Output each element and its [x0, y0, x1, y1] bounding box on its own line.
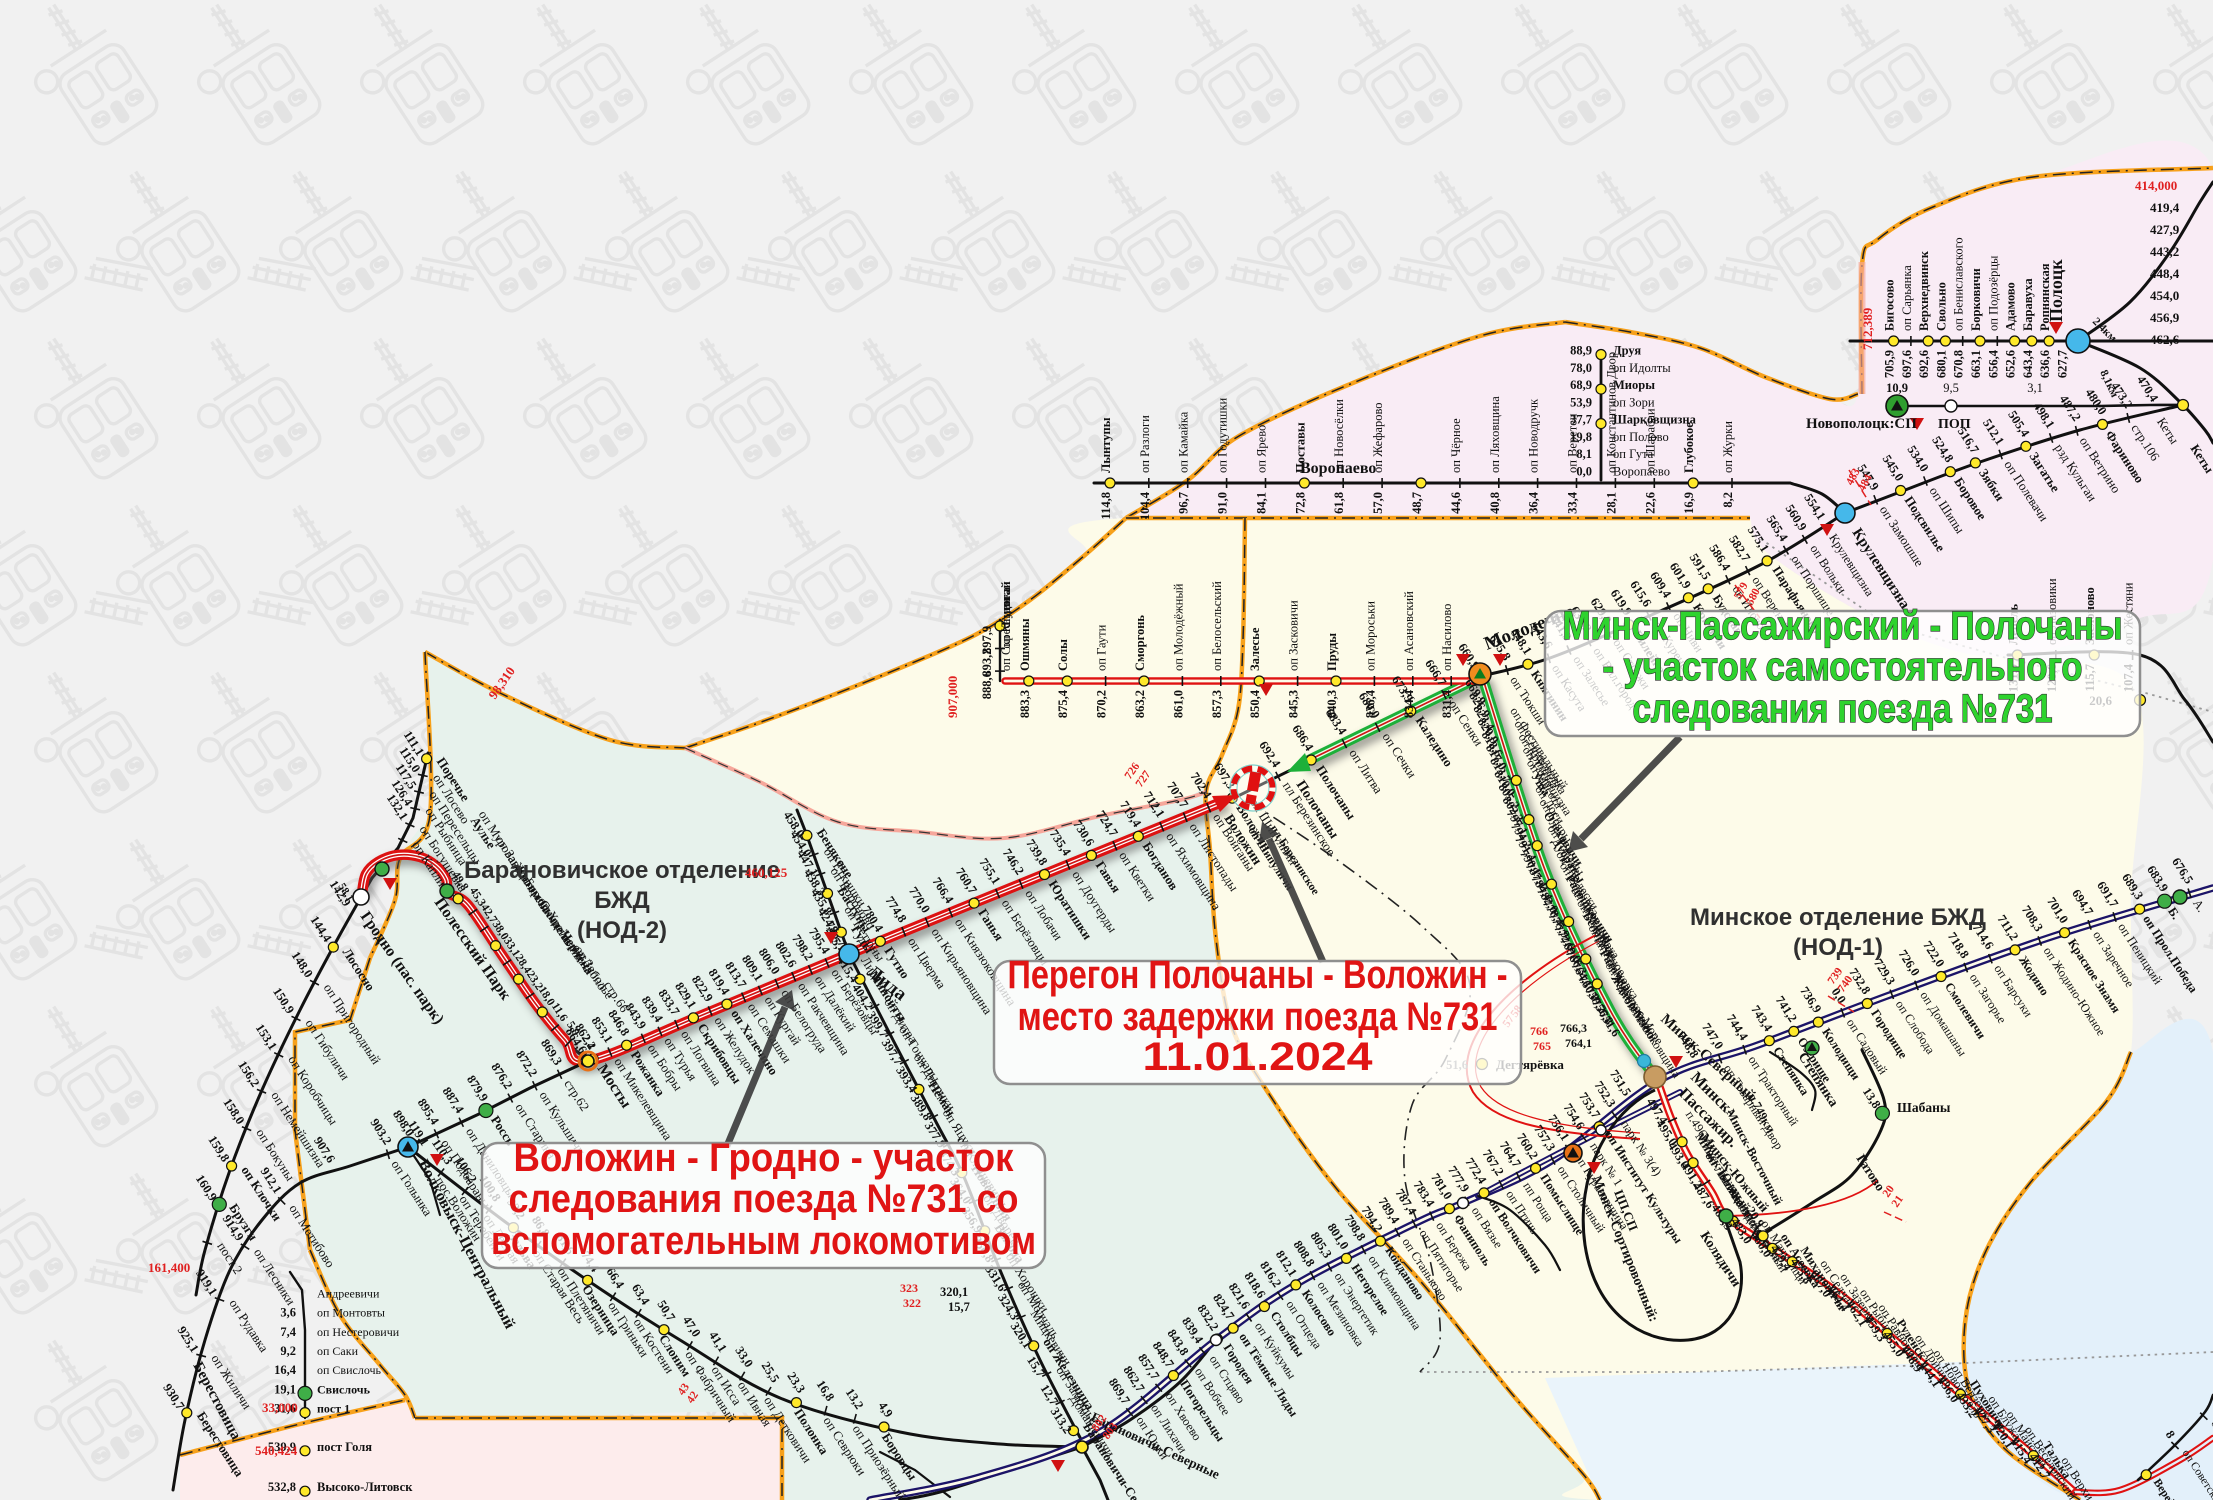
svg-text:670,8: 670,8 [1952, 350, 1966, 378]
svg-text:414,000: 414,000 [2135, 178, 2177, 193]
svg-text:831,4: 831,4 [1440, 689, 1454, 718]
svg-text:680,1: 680,1 [1934, 350, 1948, 378]
svg-text:36,4: 36,4 [1527, 491, 1541, 514]
svg-text:оп Идолты: оп Идолты [1613, 361, 1671, 375]
svg-text:765: 765 [1533, 1039, 1551, 1053]
svg-text:оп Насилово: оп Насилово [1440, 604, 1454, 671]
svg-text:114,8: 114,8 [1099, 492, 1113, 519]
svg-text:10,9: 10,9 [1886, 381, 1908, 395]
svg-text:323: 323 [900, 1281, 918, 1295]
svg-text:оп Журки: оп Журки [1721, 421, 1735, 473]
svg-text:оп Монтовты: оп Монтовты [317, 1306, 385, 1320]
svg-text:78,0: 78,0 [1570, 361, 1592, 375]
svg-text:оп Мороськи: оп Мороськи [1363, 601, 1377, 671]
svg-text:- участок самостоятельного: - участок самостоятельного [1603, 645, 2083, 689]
svg-text:320,1: 320,1 [940, 1285, 968, 1299]
svg-text:443,2: 443,2 [2150, 244, 2179, 259]
svg-text:656,4: 656,4 [1986, 349, 2000, 378]
svg-text:460,125: 460,125 [745, 865, 788, 880]
svg-text:оп Белосельский: оп Белосельский [1210, 581, 1224, 671]
svg-text:ПОП: ПОП [1938, 417, 1971, 432]
svg-text:33,4: 33,4 [1566, 491, 1580, 514]
svg-text:Бигосово: Бигосово [1883, 280, 1897, 331]
svg-text:оп Нестеровичи: оп Нестеровичи [317, 1325, 400, 1339]
svg-text:оп Шарабаи: оп Шарабаи [1643, 408, 1657, 473]
svg-text:88,9: 88,9 [1570, 344, 1592, 358]
svg-text:636,6: 636,6 [2038, 350, 2052, 378]
svg-text:427,9: 427,9 [2150, 222, 2180, 237]
svg-text:96,7: 96,7 [1177, 492, 1191, 514]
svg-text:61,8: 61,8 [1332, 492, 1346, 514]
svg-text:Перегон Полочаны - Воложин -: Перегон Полочаны - Воложин - [1008, 953, 1508, 997]
svg-text:11.01.2024: 11.01.2024 [1143, 1035, 1374, 1079]
svg-text:448,4: 448,4 [2150, 266, 2180, 281]
svg-text:540,424: 540,424 [255, 1443, 298, 1458]
svg-text:663,1: 663,1 [1969, 350, 1983, 378]
svg-text:вспомогательным локомотивом: вспомогательным локомотивом [491, 1219, 1036, 1263]
svg-text:19,1: 19,1 [274, 1382, 296, 1396]
svg-text:766: 766 [1530, 1024, 1548, 1038]
svg-text:Воложин - Гродно - участок: Воложин - Гродно - участок [514, 1136, 1015, 1180]
svg-text:15,7: 15,7 [948, 1300, 970, 1314]
svg-text:пост Голя: пост Голя [317, 1440, 372, 1454]
svg-text:705,9: 705,9 [1883, 350, 1897, 378]
svg-text:627,7: 627,7 [2055, 350, 2069, 378]
svg-text:следования поезда №731 со: следования поезда №731 со [509, 1177, 1019, 1221]
svg-text:161,400: 161,400 [148, 1260, 190, 1275]
svg-text:53,9: 53,9 [1570, 395, 1592, 409]
svg-text:оп Зори: оп Зори [1613, 395, 1655, 409]
svg-text:840,3: 840,3 [1325, 690, 1339, 718]
svg-text:68,9: 68,9 [1570, 378, 1592, 392]
svg-text:Шабаны: Шабаны [1897, 1100, 1951, 1115]
svg-text:40,8: 40,8 [1488, 492, 1502, 514]
svg-text:888,6: 888,6 [980, 671, 994, 699]
svg-text:оп Веретеи: оп Веретеи [1566, 413, 1580, 473]
svg-text:оп Сарьянка: оп Сарьянка [1900, 265, 1914, 331]
svg-text:пост 1: пост 1 [317, 1402, 350, 1416]
svg-text:оп Засковичи: оп Засковичи [1287, 600, 1301, 671]
svg-text:оп Молодёжный: оп Молодёжный [1171, 583, 1185, 671]
svg-text:697,6: 697,6 [1900, 350, 1914, 378]
svg-text:454,0: 454,0 [2150, 288, 2179, 303]
svg-text:оп Подозёрцы: оп Подозёрцы [1986, 255, 2000, 331]
svg-text:16,9: 16,9 [1682, 492, 1696, 514]
svg-text:Борковичи: Борковичи [1969, 268, 1983, 331]
svg-text:Высоко-Литовск: Высоко-Литовск [317, 1480, 413, 1494]
svg-text:оп Ярево: оп Ярево [1255, 425, 1269, 473]
svg-text:оп Чёрное: оп Чёрное [1449, 418, 1463, 473]
svg-text:9,2: 9,2 [280, 1344, 296, 1358]
svg-text:28,1: 28,1 [1604, 492, 1618, 514]
svg-text:836,4: 836,4 [1363, 689, 1377, 718]
svg-text:место задержки поезда №731: место задержки поезда №731 [1018, 995, 1498, 1039]
svg-text:84,1: 84,1 [1255, 492, 1269, 514]
svg-text:44,6: 44,6 [1449, 492, 1463, 514]
svg-text:Минск-Пассажирский - Полочаны: Минск-Пассажирский - Полочаны [1563, 604, 2123, 648]
svg-text:оп Скрестины: оп Скрестины [999, 595, 1013, 671]
svg-text:оп Свислочь: оп Свислочь [317, 1363, 382, 1377]
svg-text:33,000: 33,000 [262, 1400, 298, 1415]
svg-text:Солы: Солы [1056, 639, 1070, 671]
svg-text:Андреевичи: Андреевичи [317, 1286, 380, 1300]
svg-text:7,4: 7,4 [280, 1325, 296, 1339]
svg-text:Воропаево: Воропаево [1300, 460, 1376, 477]
svg-text:Адамово: Адамово [2004, 282, 2018, 331]
svg-text:Баравуха: Баравуха [2021, 278, 2035, 331]
svg-text:643,4: 643,4 [2021, 349, 2035, 378]
svg-text:456,9: 456,9 [2150, 310, 2180, 325]
svg-text:оп Полово: оп Полово [1613, 430, 1669, 444]
svg-text:8,2: 8,2 [1721, 492, 1735, 508]
svg-text:462,6: 462,6 [2150, 332, 2180, 347]
svg-text:Миоры: Миоры [1613, 378, 1655, 392]
svg-text:834,4: 834,4 [1402, 689, 1416, 718]
svg-text:3,6: 3,6 [280, 1306, 296, 1320]
svg-text:Верхнедвинск: Верхнедвинск [1917, 250, 1931, 331]
svg-text:91,0: 91,0 [1216, 492, 1230, 514]
svg-text:850,4: 850,4 [1248, 689, 1262, 718]
svg-text:оп Ляховщина: оп Ляховщина [1488, 396, 1502, 473]
svg-text:Свислочь: Свислочь [317, 1382, 371, 1396]
svg-text:Сморгонь: Сморгонь [1133, 615, 1147, 671]
svg-text:870,2: 870,2 [1095, 690, 1109, 718]
svg-text:883,3: 883,3 [1018, 690, 1032, 718]
svg-text:Новополоцк:СП: Новополоцк:СП [1806, 416, 1917, 432]
svg-text:Глубокое: Глубокое [1682, 422, 1696, 473]
svg-text:845,3: 845,3 [1287, 690, 1301, 718]
svg-text:48,7: 48,7 [1410, 492, 1424, 514]
svg-text:Свольно: Свольно [1934, 282, 1948, 331]
svg-text:3,1: 3,1 [2027, 381, 2043, 395]
svg-text:Минское отделение БЖД: Минское отделение БЖД [1690, 904, 1986, 931]
svg-text:712,389: 712,389 [1860, 307, 1875, 350]
svg-text:419,4: 419,4 [2150, 200, 2180, 215]
svg-text:Лынтупы: Лынтупы [1099, 417, 1113, 473]
svg-text:861,0: 861,0 [1171, 690, 1185, 718]
svg-text:Залесье: Залесье [1248, 627, 1262, 671]
svg-text:16,4: 16,4 [274, 1363, 297, 1377]
svg-text:857,3: 857,3 [1210, 690, 1224, 718]
svg-text:Барановичское отделение: Барановичское отделение [464, 857, 780, 884]
svg-text:Полоцк: Полоцк [2046, 259, 2066, 322]
svg-text:57,0: 57,0 [1371, 492, 1385, 514]
svg-text:БЖД: БЖД [594, 887, 649, 914]
svg-text:104,4: 104,4 [1138, 491, 1152, 520]
svg-text:652,6: 652,6 [2004, 350, 2018, 378]
svg-text:оп Гаути: оп Гаути [1095, 624, 1109, 671]
svg-text:322: 322 [903, 1296, 921, 1310]
svg-text:22,6: 22,6 [1643, 492, 1657, 514]
svg-text:72,8: 72,8 [1293, 492, 1307, 514]
svg-text:оп Саки: оп Саки [317, 1344, 359, 1358]
svg-text:оп Константинов Двор: оп Константинов Двор [1604, 352, 1618, 473]
svg-text:863,2: 863,2 [1133, 690, 1147, 718]
svg-text:оп Асановский: оп Асановский [1402, 591, 1416, 671]
svg-text:оп Новодручк: оп Новодручк [1527, 398, 1541, 473]
svg-text:Воропаево: Воропаево [1613, 465, 1670, 479]
svg-text:Пруды: Пруды [1325, 633, 1339, 671]
svg-text:9,5: 9,5 [1943, 381, 1959, 395]
svg-text:875,4: 875,4 [1056, 689, 1070, 718]
svg-text:Ошмяны: Ошмяны [1018, 618, 1032, 671]
svg-text:следования поезда №731: следования поезда №731 [1633, 687, 2053, 731]
svg-text:766,3: 766,3 [1560, 1021, 1587, 1035]
svg-text:(НОД-1): (НОД-1) [1793, 934, 1883, 961]
svg-text:692,6: 692,6 [1917, 350, 1931, 378]
svg-text:оп Бениславского: оп Бениславского [1952, 237, 1966, 331]
svg-text:907,000: 907,000 [945, 676, 960, 718]
svg-text:оп Годутишки: оп Годутишки [1216, 397, 1230, 473]
svg-text:(НОД-2): (НОД-2) [577, 917, 667, 944]
svg-text:532,8: 532,8 [268, 1480, 296, 1494]
svg-text:оп Камайка: оп Камайка [1177, 411, 1191, 473]
svg-text:оп Разлоги: оп Разлоги [1138, 415, 1152, 473]
svg-text:764,1: 764,1 [1565, 1036, 1592, 1050]
